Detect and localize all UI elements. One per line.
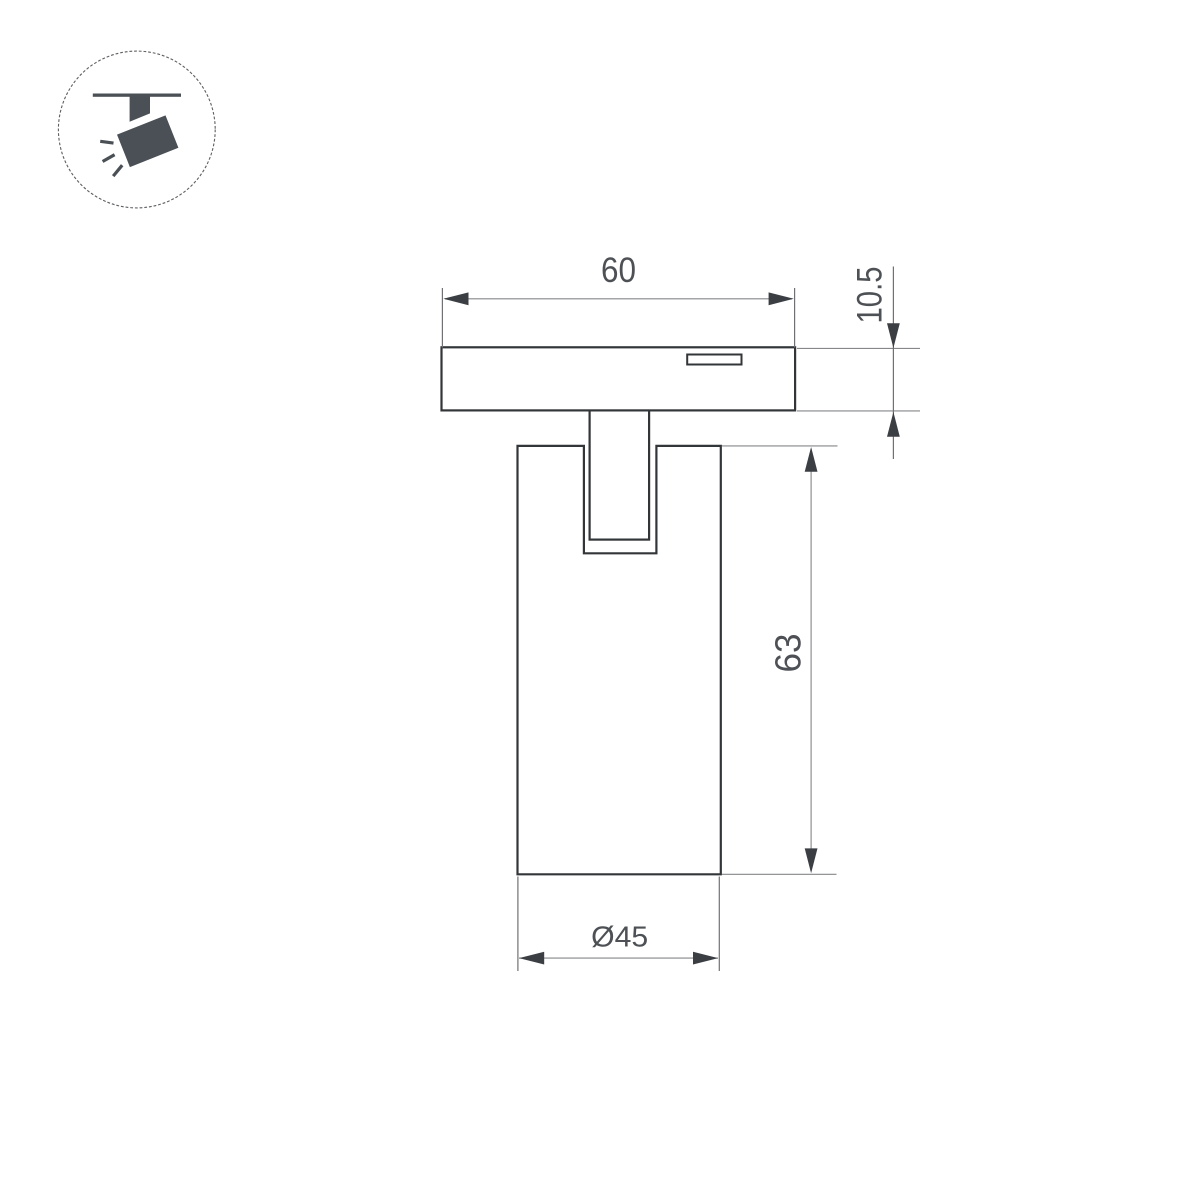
svg-text:63: 63 [768, 634, 809, 673]
svg-text:10.5: 10.5 [851, 267, 890, 324]
svg-text:Ø45: Ø45 [591, 922, 648, 954]
svg-text:60: 60 [601, 251, 636, 290]
